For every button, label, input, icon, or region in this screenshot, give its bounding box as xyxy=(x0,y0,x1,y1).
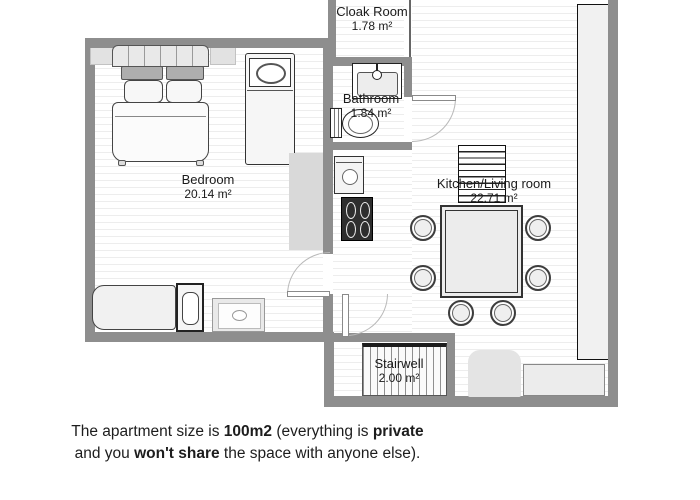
wall-apartment-right xyxy=(608,0,618,407)
entry-door-leaf xyxy=(342,294,349,337)
chair xyxy=(448,300,474,326)
chair xyxy=(410,215,436,241)
bathroom-name: Bathroom xyxy=(343,91,399,106)
kitchen-living-room-label: Kitchen/Living room 22.71 m² xyxy=(437,176,551,205)
double-bed-pillow-right xyxy=(166,80,202,103)
wall-cloak-right-line xyxy=(409,0,411,58)
floor-plan: Cloak Room 1.78 m² Bathroom 1.84 m² Bedr… xyxy=(0,0,700,410)
double-bed-foot-left xyxy=(118,160,126,166)
wall-bathroom-bottom xyxy=(328,142,412,150)
crib-basin-oval xyxy=(256,63,286,84)
wall-bedroom-bottom xyxy=(85,332,334,342)
wall-apartment-bottom xyxy=(324,396,618,407)
wall-mid-vertical xyxy=(324,342,334,402)
bathroom-area: 1.84 m² xyxy=(343,106,399,120)
stove xyxy=(341,197,373,241)
single-bed-pillow xyxy=(182,292,199,325)
caption-bold-size: 100m2 xyxy=(224,423,272,440)
caption-bold-private: private xyxy=(373,423,424,440)
single-bed-headboard xyxy=(176,283,204,332)
nightstand-knob xyxy=(232,310,247,321)
caption-line-2: and you won't share the space with anyon… xyxy=(40,443,455,465)
stairwell-label: Stairwell 2.00 m² xyxy=(374,356,423,385)
caption: The apartment size is 100m2 (everything … xyxy=(40,421,455,464)
double-bed-foot-right xyxy=(196,160,204,166)
double-bed-cushion-left xyxy=(121,66,163,80)
crib xyxy=(245,53,295,165)
caption-text: and you xyxy=(75,445,134,462)
wall-cloak-left xyxy=(328,0,336,58)
bathroom-door-leaf xyxy=(412,95,456,101)
chair xyxy=(525,215,551,241)
chair xyxy=(525,265,551,291)
double-bed-duvet xyxy=(112,102,209,162)
caption-text: the space with anyone else). xyxy=(220,445,421,462)
cloak-room-area: 1.78 m² xyxy=(336,19,408,33)
stove-burner xyxy=(360,202,370,219)
kitchen-living-room-name: Kitchen/Living room xyxy=(437,176,551,191)
caption-text: The apartment size is xyxy=(71,423,223,440)
washing-machine-drum xyxy=(342,169,358,185)
washing-machine-panel xyxy=(336,162,362,163)
armchair xyxy=(468,350,521,397)
bedroom-door-leaf xyxy=(287,291,330,297)
washing-machine xyxy=(334,156,364,194)
chair xyxy=(410,265,436,291)
stove-burner xyxy=(360,221,370,238)
single-bed-mattress xyxy=(92,285,176,330)
crib-top xyxy=(249,58,291,87)
chair xyxy=(490,300,516,326)
nightstand xyxy=(212,298,265,332)
stairwell-name: Stairwell xyxy=(374,356,423,371)
wall-stairwell-right xyxy=(447,341,455,399)
faucet-knob xyxy=(372,70,382,80)
caption-text: (everything is xyxy=(272,423,373,440)
apartment-floor-plan-page: Cloak Room 1.78 m² Bathroom 1.84 m² Bedr… xyxy=(0,0,700,500)
stove-burner xyxy=(346,221,356,238)
dining-table xyxy=(440,205,523,298)
toilet-tank xyxy=(330,108,342,138)
wardrobe xyxy=(289,153,323,250)
caption-line-1: The apartment size is 100m2 (everything … xyxy=(40,421,455,443)
crib-divider xyxy=(247,90,293,91)
bedroom-label: Bedroom 20.14 m² xyxy=(182,172,235,201)
window-strip xyxy=(577,4,608,360)
double-bed-cushion-right xyxy=(166,66,204,80)
duvet-seam xyxy=(115,116,206,117)
cloak-room-label: Cloak Room 1.78 m² xyxy=(336,4,408,33)
stairwell-area: 2.00 m² xyxy=(374,371,423,385)
wall-bathroom-right xyxy=(404,57,412,97)
wall-cabinet-right xyxy=(210,48,236,65)
dining-table-top xyxy=(445,210,518,293)
sideboard xyxy=(523,364,605,396)
bedroom-area: 20.14 m² xyxy=(182,187,235,201)
bathroom-label: Bathroom 1.84 m² xyxy=(343,91,399,120)
bedroom-name: Bedroom xyxy=(182,172,235,187)
caption-bold-wont-share: won't share xyxy=(134,445,220,462)
stove-burner xyxy=(346,202,356,219)
double-bed-headboard xyxy=(112,45,209,67)
cloak-room-name: Cloak Room xyxy=(336,4,408,19)
kitchen-living-room-area: 22.71 m² xyxy=(437,191,551,205)
double-bed-pillow-left xyxy=(124,80,163,103)
